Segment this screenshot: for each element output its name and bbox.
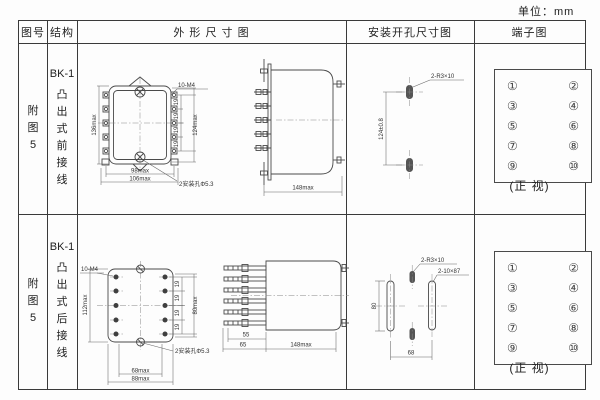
terminal-2: ② xyxy=(568,79,579,93)
dimension-lines xyxy=(375,264,469,360)
row2-fig-cell: 附图5 xyxy=(19,214,47,389)
row2-structure-cell: BK-1 凸出式后接线 xyxy=(47,214,77,389)
slot-size-label: 2-R3×10 xyxy=(431,74,455,80)
terminal-3: ③ xyxy=(507,281,518,295)
large-slots xyxy=(387,281,436,331)
thread-label: 10-M4 xyxy=(81,267,99,273)
large-slot-label: 2-10×87 xyxy=(438,269,461,275)
dim-stud: 55 xyxy=(243,333,250,339)
terminal-10: ⑩ xyxy=(568,159,579,173)
terminal-5: ⑤ xyxy=(507,119,518,133)
terminal-6: ⑥ xyxy=(568,119,579,133)
dim-width-outer: 88max xyxy=(131,377,149,383)
dim-slot-height: 80 xyxy=(372,302,378,309)
terminal-4: ④ xyxy=(568,281,579,295)
row2-terminal-diagram: ① ② ③ ④ ⑤ ⑥ ⑦ ⑧ ⑨ ⑩ xyxy=(494,251,592,365)
dim-pitch: 19 xyxy=(175,323,181,330)
slot-centerlines xyxy=(396,77,423,180)
dim-hole-spacing: 124±0.8 xyxy=(379,118,385,140)
row1-terminal-diagram: ① ② ③ ④ ⑤ ⑥ ⑦ ⑧ ⑨ ⑩ xyxy=(494,69,592,183)
table-divider xyxy=(19,43,585,44)
table-divider xyxy=(474,21,475,389)
fig-number: 附图5 xyxy=(26,103,40,154)
dim-pitch: 19 xyxy=(175,280,181,287)
dim-depth: 148max xyxy=(292,186,313,192)
dim-pitch: 19 xyxy=(174,126,180,133)
dim-pitch: 19 xyxy=(175,309,181,316)
mount-hole-label: 2安装孔Φ5.3 xyxy=(179,180,214,188)
terminal-1: ① xyxy=(507,79,518,93)
table-divider xyxy=(19,214,585,215)
terminal-studs xyxy=(254,90,271,151)
dim-pitch: 19 xyxy=(174,140,180,147)
terminal-7: ⑦ xyxy=(507,139,518,153)
rear-screws xyxy=(333,81,345,163)
row1-install-drawing: 124±0.8 2-R3×10 xyxy=(359,56,469,208)
spec-table: 图号 结构 外 形 尺 寸 图 安装开孔尺寸图 端子图 附图5 BK-1 凸出式… xyxy=(18,20,586,390)
structure-label: 凸出式后接线 xyxy=(55,260,69,362)
dim-terminal-span: 80max xyxy=(193,296,199,314)
dim-pitch: 19 xyxy=(174,98,180,105)
thread-label: 10-M4 xyxy=(178,83,196,89)
terminal-6: ⑥ xyxy=(568,301,579,315)
dim-width-outer: 106max xyxy=(129,177,150,183)
dim-front: 65 xyxy=(240,343,247,349)
terminal-10: ⑩ xyxy=(568,341,579,355)
row1-fig-cell: 附图5 xyxy=(19,43,47,214)
header-fig-no: 图号 xyxy=(19,21,47,43)
dim-pitch: 19 xyxy=(174,112,180,119)
terminal-1: ① xyxy=(507,261,518,275)
table-divider xyxy=(77,21,78,389)
dim-slot-spacing: 68 xyxy=(408,351,415,357)
row1-terminal-caption: (正 视) xyxy=(474,177,585,194)
dim-depth: 148max xyxy=(290,343,311,349)
row2-install-drawing: 80 2-R3×10 2-10×87 68 xyxy=(359,253,471,389)
mount-hole-label: 2安装孔Φ5.3 xyxy=(175,347,210,355)
structure-label: 凸出式前接线 xyxy=(55,87,69,189)
dim-pitch: 19 xyxy=(175,294,181,301)
terminal-8: ⑧ xyxy=(568,321,579,335)
mount-bracket xyxy=(261,59,272,185)
header-install: 安装开孔尺寸图 xyxy=(346,21,474,43)
row1-structure-cell: BK-1 凸出式前接线 xyxy=(47,43,77,214)
dim-width-inner: 68max xyxy=(131,369,149,375)
dimension-lines xyxy=(383,80,464,165)
unit-label: 单位：mm xyxy=(518,3,574,19)
dim-case-height: 112max xyxy=(83,295,89,316)
row2-side-view-drawing: 55 65 148max xyxy=(216,253,351,389)
terminal-9: ⑨ xyxy=(507,341,518,355)
dim-width-inner: 98max xyxy=(131,169,149,175)
header-terminal: 端子图 xyxy=(474,21,585,43)
case-body xyxy=(271,70,333,174)
terminal-5: ⑤ xyxy=(507,301,518,315)
row1-front-view-drawing: 136max 19 19 19 19 124max 10-M4 98max 10… xyxy=(86,56,246,208)
fig-number: 附图5 xyxy=(26,276,40,327)
terminal-8: ⑧ xyxy=(568,139,579,153)
dim-terminal-span: 124max xyxy=(193,114,199,135)
terminal-2: ② xyxy=(568,261,579,275)
dim-case-height: 136max xyxy=(92,114,98,135)
model-label: BK-1 xyxy=(50,241,74,253)
header-outline: 外 形 尺 寸 图 xyxy=(77,21,346,43)
datasheet-page: 单位：mm 图号 结构 外 形 尺 寸 图 安装开孔尺寸图 端子图 附图5 BK… xyxy=(0,0,600,400)
row1-side-view-drawing: 148max xyxy=(246,56,346,208)
terminal-7: ⑦ xyxy=(507,321,518,335)
row2-terminal-caption: (正 视) xyxy=(474,359,585,376)
header-structure: 结构 xyxy=(47,21,77,43)
small-slot-label: 2-R3×10 xyxy=(421,258,445,264)
terminal-9: ⑨ xyxy=(507,159,518,173)
model-label: BK-1 xyxy=(50,68,74,80)
terminal-4: ④ xyxy=(568,99,579,113)
terminal-3: ③ xyxy=(507,99,518,113)
